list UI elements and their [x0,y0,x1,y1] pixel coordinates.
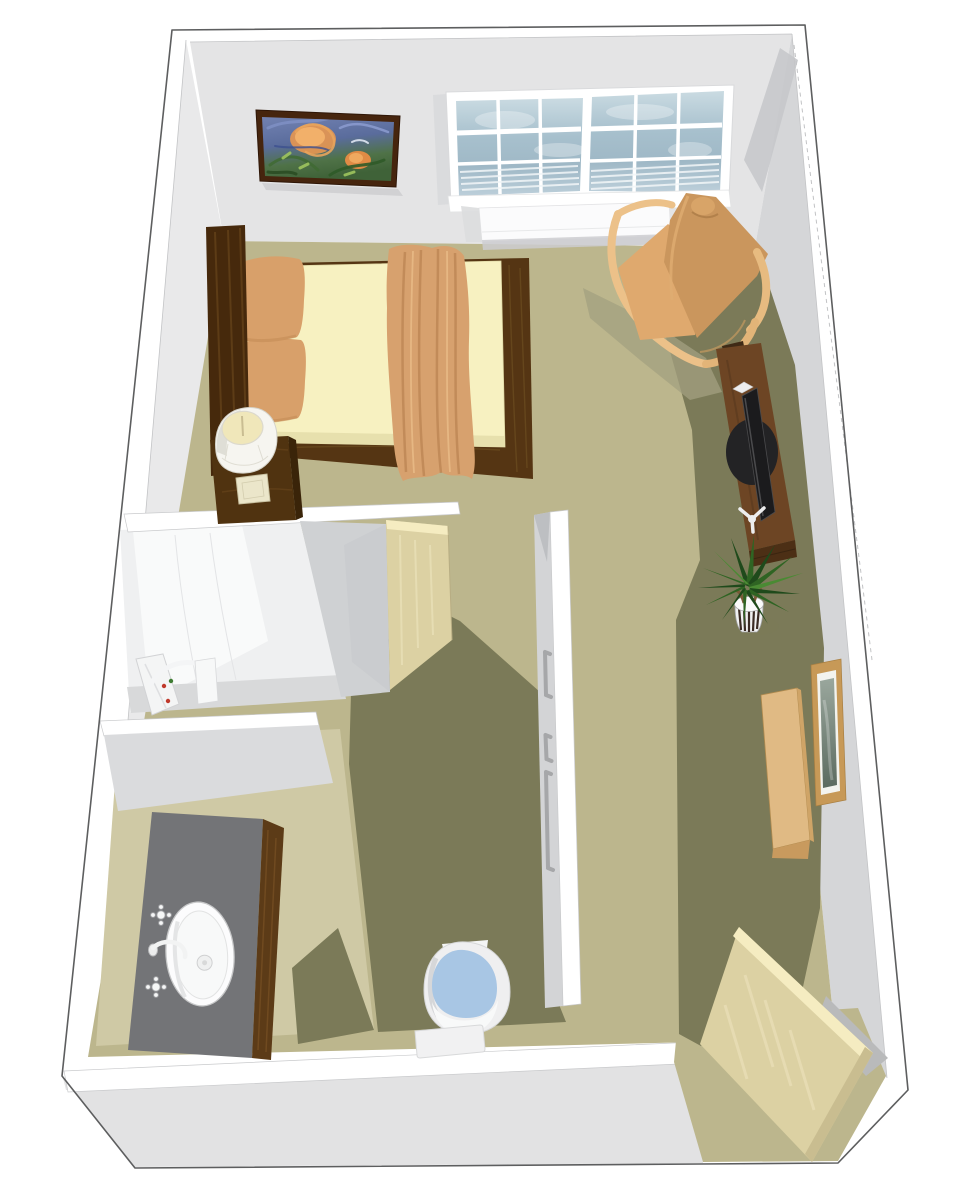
lamp-harp [242,416,243,436]
shower-wall-plate [195,658,218,704]
floorplan-svg [0,0,965,1200]
chair-headrest [691,197,715,215]
picture-frame [811,659,846,806]
lamp-base [236,474,270,504]
floorplan-render [0,0,965,1200]
vanity-area [96,712,374,1060]
toilet-tank [415,1025,485,1058]
throw-blanket [387,245,475,481]
